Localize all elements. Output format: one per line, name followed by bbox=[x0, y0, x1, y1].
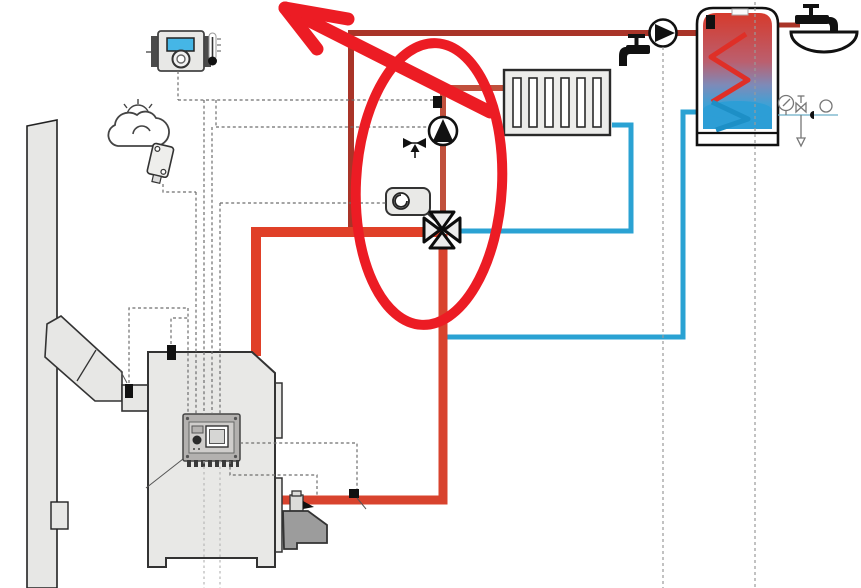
outdoor-sensor bbox=[108, 99, 174, 185]
thermometer-icon bbox=[208, 33, 221, 66]
controller-display bbox=[167, 38, 194, 51]
safety-group bbox=[778, 96, 838, 147]
panel-knob bbox=[193, 436, 202, 445]
tank-sensor bbox=[706, 15, 715, 29]
boiler-top-sensor bbox=[167, 345, 176, 360]
drain-arrow bbox=[797, 138, 805, 146]
outdoor-sensor-box bbox=[145, 143, 174, 185]
boiler bbox=[146, 345, 282, 567]
mixing-valve bbox=[424, 212, 460, 248]
boiler-return-pipe bbox=[282, 234, 443, 500]
dhw-tank bbox=[697, 8, 778, 145]
radiator-return-pipe bbox=[458, 125, 631, 231]
annotation bbox=[285, 8, 509, 329]
radiator bbox=[504, 70, 610, 135]
heating-schematic bbox=[0, 0, 861, 588]
annotation-arrow-shaft bbox=[290, 11, 490, 112]
supply-temperature-sensor bbox=[433, 96, 442, 108]
dhw-pump bbox=[650, 20, 677, 47]
circulation-pump bbox=[429, 117, 457, 145]
expansion-fitting bbox=[820, 100, 832, 112]
chimney-cleanout-door bbox=[51, 502, 68, 529]
boiler-control-panel bbox=[183, 414, 240, 467]
cold-water-tap-icon bbox=[619, 34, 650, 66]
room-controller bbox=[146, 31, 221, 71]
cloud-icon bbox=[108, 112, 169, 146]
flue-gas-sensor bbox=[125, 384, 133, 398]
boiler-supply-pipe bbox=[256, 232, 441, 356]
valve-actuator-motor bbox=[386, 188, 437, 222]
check-valve bbox=[810, 111, 814, 119]
tank-return-pipe bbox=[447, 112, 706, 337]
basin-icon bbox=[791, 32, 857, 52]
hot-water-tap-icon bbox=[795, 4, 838, 35]
air-vent-icon bbox=[403, 138, 426, 158]
